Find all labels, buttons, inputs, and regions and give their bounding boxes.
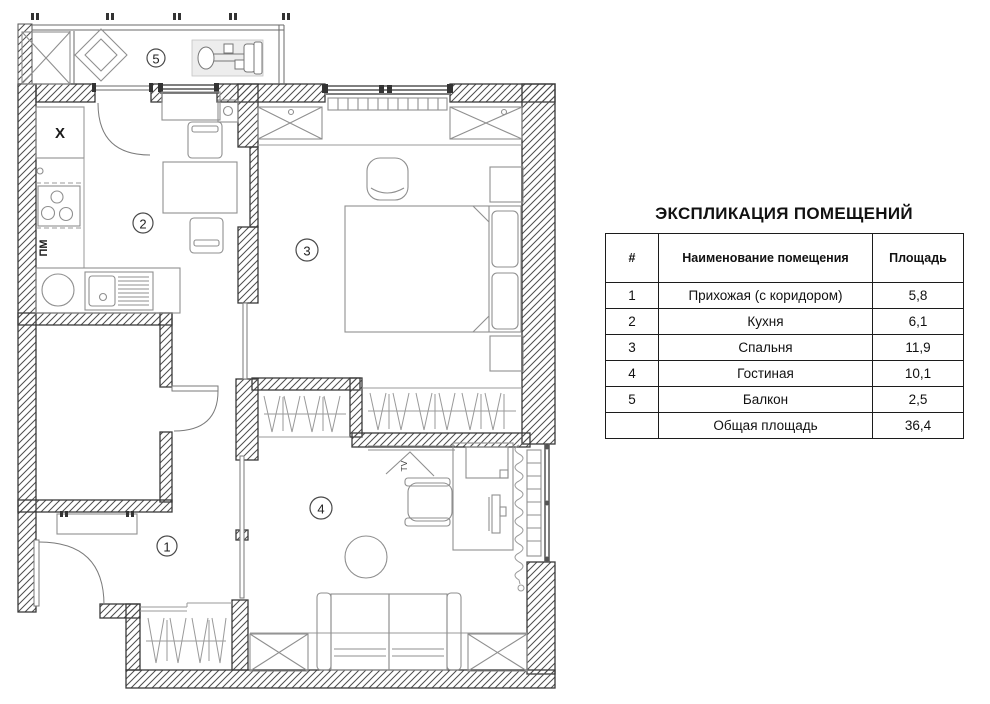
nightstand-top xyxy=(490,167,523,202)
balcony-furniture xyxy=(22,29,263,84)
kitchen-balcony-door-arc xyxy=(98,103,150,155)
floor-plan-drawing: X ПМ xyxy=(0,0,580,704)
fridge: X xyxy=(36,107,84,158)
living-room-sliding-door xyxy=(240,456,244,598)
bathroom-door xyxy=(172,386,218,431)
bedroom-cabinet-left xyxy=(258,107,322,139)
room-number-balcony: 5 xyxy=(147,49,165,67)
svg-text:1: 1 xyxy=(163,540,170,555)
pillow xyxy=(492,273,518,329)
bedroom-sliding-door xyxy=(243,303,247,379)
monitor xyxy=(492,495,500,533)
explication-panel: ЭКСПЛИКАЦИЯ ПОМЕЩЕНИЙ # Наименование пом… xyxy=(605,204,963,439)
balcony-window-ticks xyxy=(31,13,290,20)
table-row: 3 Спальня 11,9 xyxy=(606,335,964,361)
svg-text:4: 4 xyxy=(317,502,324,517)
room-number-bedroom: 3 xyxy=(296,239,318,261)
table-header-row: # Наименование помещения Площадь xyxy=(606,234,964,283)
balcony-chair xyxy=(75,29,127,81)
floor-plan-page: X ПМ xyxy=(0,0,990,704)
kitchen-sink xyxy=(85,272,153,310)
bedroom-cabinet-right xyxy=(450,107,522,139)
stove xyxy=(38,186,80,226)
table-row: 2 Кухня 6,1 xyxy=(606,309,964,335)
room-number-hallway: 1 xyxy=(157,536,177,556)
dishwasher-label: ПМ xyxy=(38,239,50,256)
explication-table: # Наименование помещения Площадь 1 Прихо… xyxy=(605,233,964,439)
hallway-furniture xyxy=(57,511,137,534)
storage-box-left xyxy=(250,634,308,671)
sink-drainer xyxy=(118,277,149,305)
storage-box-right xyxy=(468,634,527,671)
pillow xyxy=(492,211,518,267)
dining-chair-bottom xyxy=(190,218,223,253)
room-number-kitchen: 2 xyxy=(133,213,153,233)
tv-label: TV xyxy=(399,460,409,471)
sofa xyxy=(317,593,461,670)
printer xyxy=(466,447,508,478)
col-header-area: Площадь xyxy=(873,234,964,283)
svg-text:3: 3 xyxy=(303,244,310,259)
living-room-radiator xyxy=(527,450,541,556)
dining-table xyxy=(163,162,237,213)
dining-chair-top xyxy=(188,122,222,158)
svg-text:5: 5 xyxy=(152,52,159,67)
kitchen-counter xyxy=(36,268,180,313)
living-room-furniture: TV xyxy=(250,443,527,671)
double-bed xyxy=(345,206,521,332)
doors xyxy=(34,103,247,606)
table-row: 4 Гостиная 10,1 xyxy=(606,361,964,387)
wardrobe-corridor xyxy=(258,396,350,437)
svg-text:2: 2 xyxy=(139,217,146,232)
coffee-table xyxy=(345,536,387,578)
kitchen-furniture: X ПМ xyxy=(36,92,238,313)
pouf xyxy=(367,158,408,200)
bedroom-furniture xyxy=(258,107,523,371)
tv: TV xyxy=(368,446,455,476)
table-row: 1 Прихожая (с коридором) 5,8 xyxy=(606,283,964,309)
col-header-num: # xyxy=(606,234,659,283)
exercise-machine xyxy=(192,40,263,76)
entrance-door xyxy=(34,540,104,606)
kitchen-balcony-doorway xyxy=(95,86,151,90)
bedroom-window xyxy=(322,84,453,110)
nightstand-bottom xyxy=(490,336,523,371)
washing-machine xyxy=(42,274,74,306)
curtain xyxy=(515,445,524,591)
table-row: 5 Балкон 2,5 xyxy=(606,387,964,413)
table-total-row: Общая площадь 36,4 xyxy=(606,413,964,439)
room-number-living-room: 4 xyxy=(310,497,332,519)
col-header-name: Наименование помещения xyxy=(659,234,873,283)
armchair xyxy=(405,478,452,526)
table-title: ЭКСПЛИКАЦИЯ ПОМЕЩЕНИЙ xyxy=(605,204,963,224)
living-room-window xyxy=(527,444,550,562)
desk xyxy=(453,443,513,550)
walls xyxy=(18,24,555,688)
hall-bench xyxy=(57,514,137,534)
wardrobe-bedroom xyxy=(362,388,522,430)
fridge-label: X xyxy=(55,125,65,142)
entry-closet xyxy=(140,603,232,663)
